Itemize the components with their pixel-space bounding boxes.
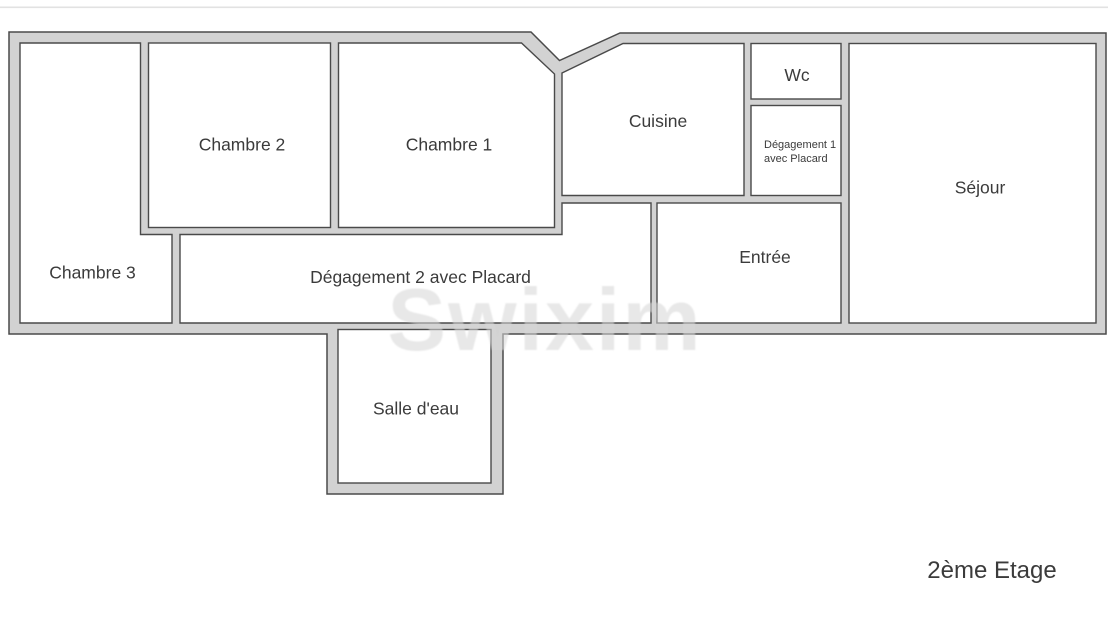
svg-text:Chambre 1: Chambre 1 — [406, 135, 493, 155]
svg-text:Entrée: Entrée — [739, 247, 791, 267]
svg-text:avec Placard: avec Placard — [764, 153, 828, 165]
svg-text:Salle d'eau: Salle d'eau — [373, 399, 459, 419]
svg-text:Dégagement 1: Dégagement 1 — [764, 139, 836, 151]
svg-text:Wc: Wc — [784, 65, 810, 85]
svg-text:Chambre 2: Chambre 2 — [199, 135, 286, 155]
svg-text:2ème Etage: 2ème Etage — [927, 557, 1056, 584]
svg-text:Dégagement 2 avec Placard: Dégagement 2 avec Placard — [310, 267, 531, 287]
svg-text:Séjour: Séjour — [955, 178, 1006, 198]
svg-text:Cuisine: Cuisine — [629, 111, 687, 131]
svg-text:Chambre 3: Chambre 3 — [49, 263, 136, 283]
